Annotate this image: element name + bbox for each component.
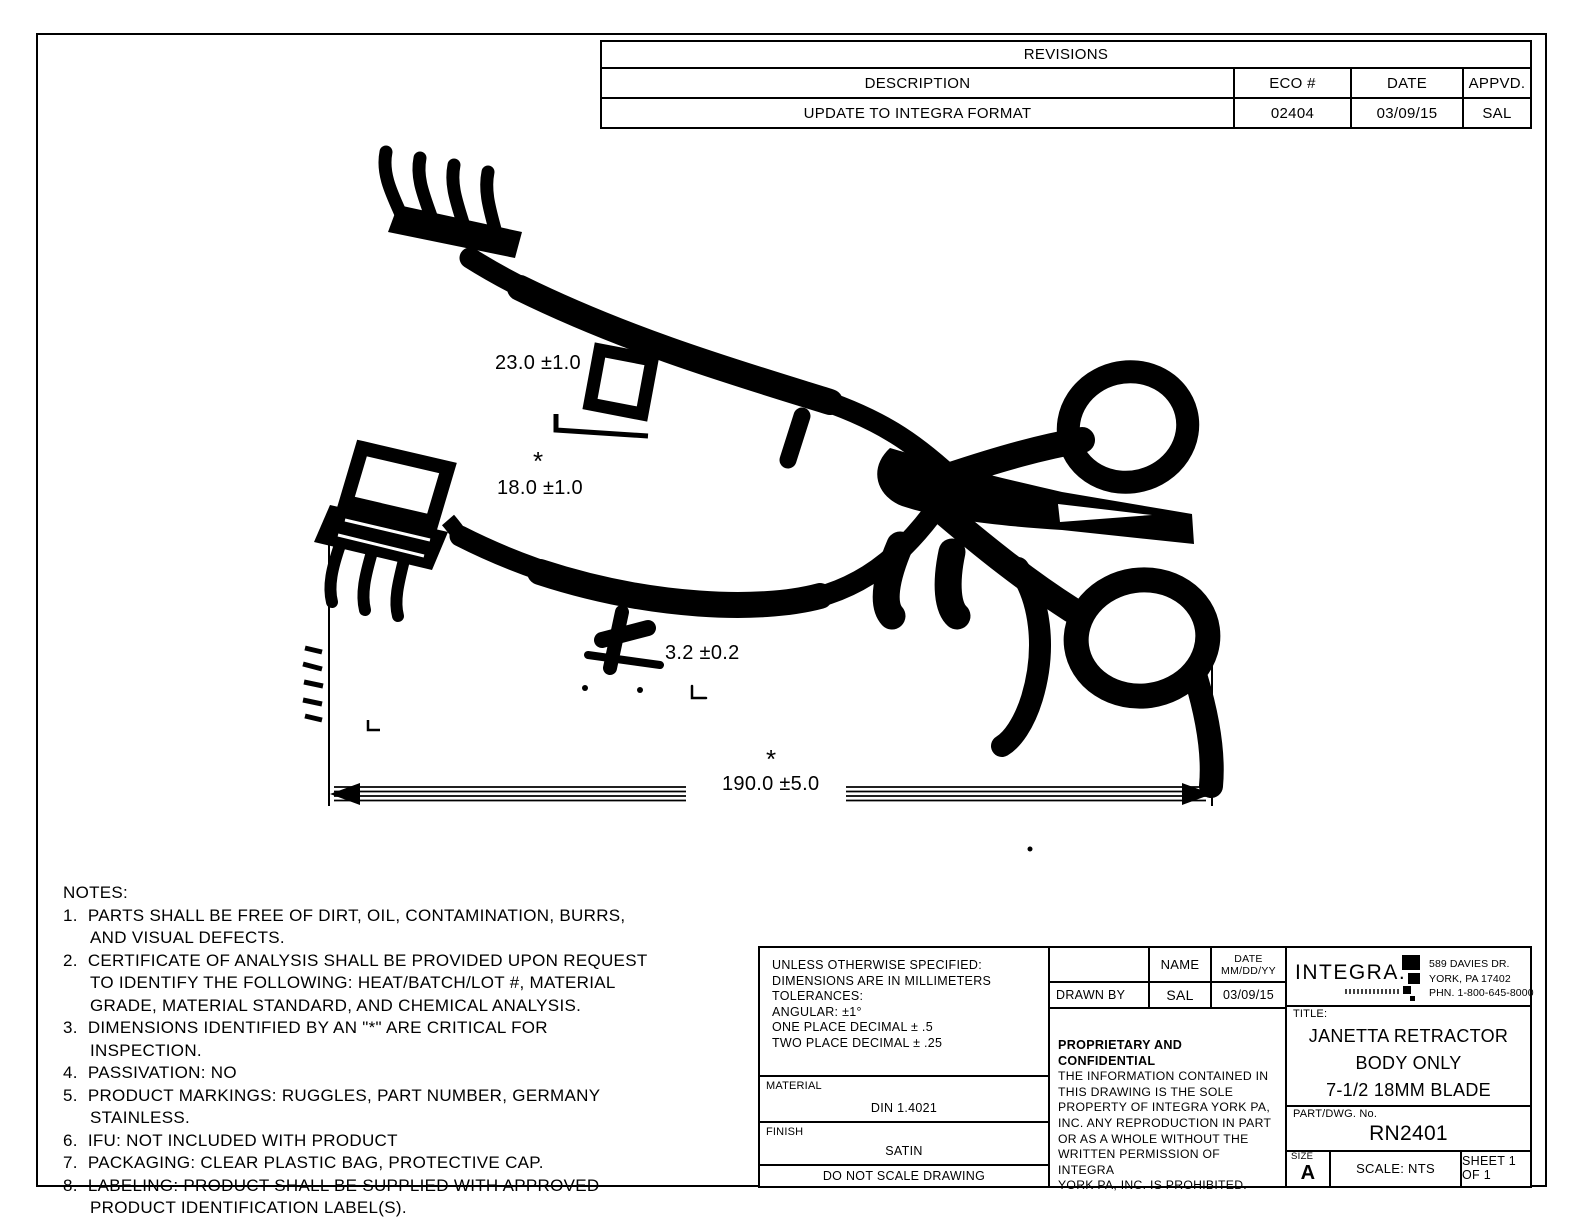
- finish-value: SATIN: [760, 1144, 1048, 1158]
- note-item-6: 6. IFU: NOT INCLUDED WITH PRODUCT: [63, 1130, 655, 1153]
- drawn-by-name: SAL: [1150, 983, 1212, 1007]
- proprietary-line: INC. ANY REPRODUCTION IN PART: [1058, 1116, 1279, 1132]
- proprietary-notice: PROPRIETARY AND CONFIDENTIAL THE INFORMA…: [1058, 1038, 1279, 1194]
- tolerance-line: DIMENSIONS ARE IN MILLIMETERS: [772, 974, 991, 990]
- dim-label-3-2: 3.2 ±0.2: [665, 642, 740, 665]
- upper-rake-blade: [385, 152, 522, 258]
- tolerance-line: ONE PLACE DECIMAL ± .5: [772, 1020, 991, 1036]
- proprietary-line: YORK PA, INC. IS PROHIBITED.: [1058, 1178, 1279, 1194]
- tolerance-line: UNLESS OTHERWISE SPECIFIED:: [772, 958, 991, 974]
- note-item-8: 8. LABELING: PRODUCT SHALL BE SUPPLIED W…: [63, 1175, 655, 1220]
- finish-box: FINISH SATIN: [760, 1121, 1048, 1166]
- approval-header-row: NAME DATE MM/DD/YY: [1050, 948, 1285, 983]
- date-header-line2: MM/DD/YY: [1221, 965, 1276, 977]
- part-label: PART/DWG. No.: [1293, 1108, 1377, 1120]
- tolerance-line: TWO PLACE DECIMAL ± .25: [772, 1036, 991, 1052]
- note-item-1: 1. PARTS SHALL BE FREE OF DIRT, OIL, CON…: [63, 905, 655, 950]
- logo-square-icon: [1403, 986, 1411, 994]
- do-not-scale-note: DO NOT SCALE DRAWING: [760, 1164, 1048, 1186]
- notes-block: NOTES: 1. PARTS SHALL BE FREE OF DIRT, O…: [63, 882, 655, 1220]
- dim-label-18: 18.0 ±1.0: [497, 477, 583, 500]
- retractor-tail: [1196, 678, 1212, 786]
- drawn-by-row: DRAWN BY SAL 03/09/15: [1050, 983, 1285, 1009]
- integra-logo: INTEGRA.: [1295, 961, 1406, 985]
- proprietary-line: THE INFORMATION CONTAINED IN: [1058, 1069, 1279, 1085]
- size-label: SIZE: [1291, 1151, 1313, 1162]
- address-line: PHN. 1-800-645-8000: [1429, 986, 1534, 1001]
- material-label: MATERIAL: [766, 1080, 822, 1092]
- sheet-cell: SHEET 1 OF 1: [1462, 1150, 1530, 1186]
- size-cell: SIZE A: [1287, 1150, 1331, 1186]
- size-scale-sheet-row: SIZE A SCALE: NTS SHEET 1 OF 1: [1287, 1150, 1530, 1186]
- date-header: DATE MM/DD/YY: [1212, 948, 1285, 981]
- upper-finger-ring: [1056, 359, 1199, 495]
- logo-square-icon: [1402, 955, 1420, 970]
- title-line: JANETTA RETRACTOR: [1287, 1023, 1530, 1050]
- spec-block: UNLESS OTHERWISE SPECIFIED: DIMENSIONS A…: [758, 946, 1050, 1188]
- part-number: RN2401: [1287, 1122, 1530, 1146]
- retractor-peg: [788, 416, 802, 460]
- part-number-box: PART/DWG. No. RN2401: [1287, 1105, 1530, 1152]
- material-value: DIN 1.4021: [760, 1101, 1048, 1115]
- engineering-drawing-page: { "colors": {"ink": "#000000", "paper": …: [0, 0, 1584, 1224]
- drawn-by-label: DRAWN BY: [1050, 983, 1150, 1007]
- critical-marker-18: *: [533, 446, 543, 477]
- note-item-5: 5. PRODUCT MARKINGS: RUGGLES, PART NUMBE…: [63, 1085, 655, 1130]
- retractor-hook: [1002, 568, 1040, 746]
- proprietary-heading: PROPRIETARY AND CONFIDENTIAL: [1058, 1038, 1279, 1069]
- proprietary-line: WRITTEN PERMISSION OF INTEGRA: [1058, 1147, 1279, 1178]
- tolerance-line: TOLERANCES:: [772, 989, 991, 1005]
- drawing-title: JANETTA RETRACTOR BODY ONLY 7-1/2 18MM B…: [1287, 1023, 1530, 1104]
- scan-artifacts: [303, 648, 1033, 852]
- company-address: 589 DAVIES DR. YORK, PA 17402 PHN. 1-800…: [1429, 957, 1534, 1001]
- address-line: 589 DAVIES DR.: [1429, 957, 1534, 972]
- lower-rake-blade: [314, 448, 462, 616]
- logo-square-icon: [1408, 973, 1420, 984]
- name-header: NAME: [1150, 948, 1212, 981]
- critical-marker-190: *: [766, 744, 776, 775]
- title-line: 7-1/2 18MM BLADE: [1287, 1077, 1530, 1104]
- tolerance-notes: UNLESS OTHERWISE SPECIFIED: DIMENSIONS A…: [772, 958, 991, 1051]
- title-block: INTEGRA. 589 DAVIES DR. YORK, PA 17402 P…: [1285, 946, 1532, 1188]
- tolerance-line: ANGULAR: ±1°: [772, 1005, 991, 1021]
- proprietary-line: THIS DRAWING IS THE SOLE: [1058, 1085, 1279, 1101]
- material-box: MATERIAL DIN 1.4021: [760, 1075, 1048, 1123]
- note-item-7: 7. PACKAGING: CLEAR PLASTIC BAG, PROTECT…: [63, 1152, 655, 1175]
- scale-cell: SCALE: NTS: [1331, 1150, 1462, 1186]
- notes-heading: NOTES:: [63, 882, 655, 905]
- lower-finger-ring: [1069, 571, 1216, 704]
- title-line: BODY ONLY: [1287, 1050, 1530, 1077]
- note-item-4: 4. PASSIVATION: NO: [63, 1062, 655, 1085]
- approval-block: NAME DATE MM/DD/YY DRAWN BY SAL 03/09/15…: [1048, 946, 1287, 1188]
- dim-label-190: 190.0 ±5.0: [722, 773, 819, 796]
- logo-tagline-smudge: [1345, 989, 1401, 994]
- proprietary-line: PROPERTY OF INTEGRA YORK PA,: [1058, 1100, 1279, 1116]
- logo-square-icon: [1410, 996, 1415, 1001]
- approval-header-blank: [1050, 948, 1150, 981]
- finish-label: FINISH: [766, 1126, 803, 1138]
- company-logo-box: INTEGRA. 589 DAVIES DR. YORK, PA 17402 P…: [1287, 948, 1530, 1007]
- note-item-3: 3. DIMENSIONS IDENTIFIED BY AN "*" ARE C…: [63, 1017, 655, 1062]
- proprietary-line: OR AS A WHOLE WITHOUT THE: [1058, 1132, 1279, 1148]
- title-label: TITLE:: [1293, 1008, 1327, 1020]
- size-value: A: [1301, 1162, 1316, 1185]
- note-item-2: 2. CERTIFICATE OF ANALYSIS SHALL BE PROV…: [63, 950, 655, 1018]
- address-line: YORK, PA 17402: [1429, 972, 1534, 987]
- drawing-title-box: TITLE: JANETTA RETRACTOR BODY ONLY 7-1/2…: [1287, 1005, 1530, 1107]
- date-header-line1: DATE: [1234, 953, 1262, 965]
- dim-label-23: 23.0 ±1.0: [495, 352, 581, 375]
- drawn-by-date: 03/09/15: [1212, 983, 1285, 1007]
